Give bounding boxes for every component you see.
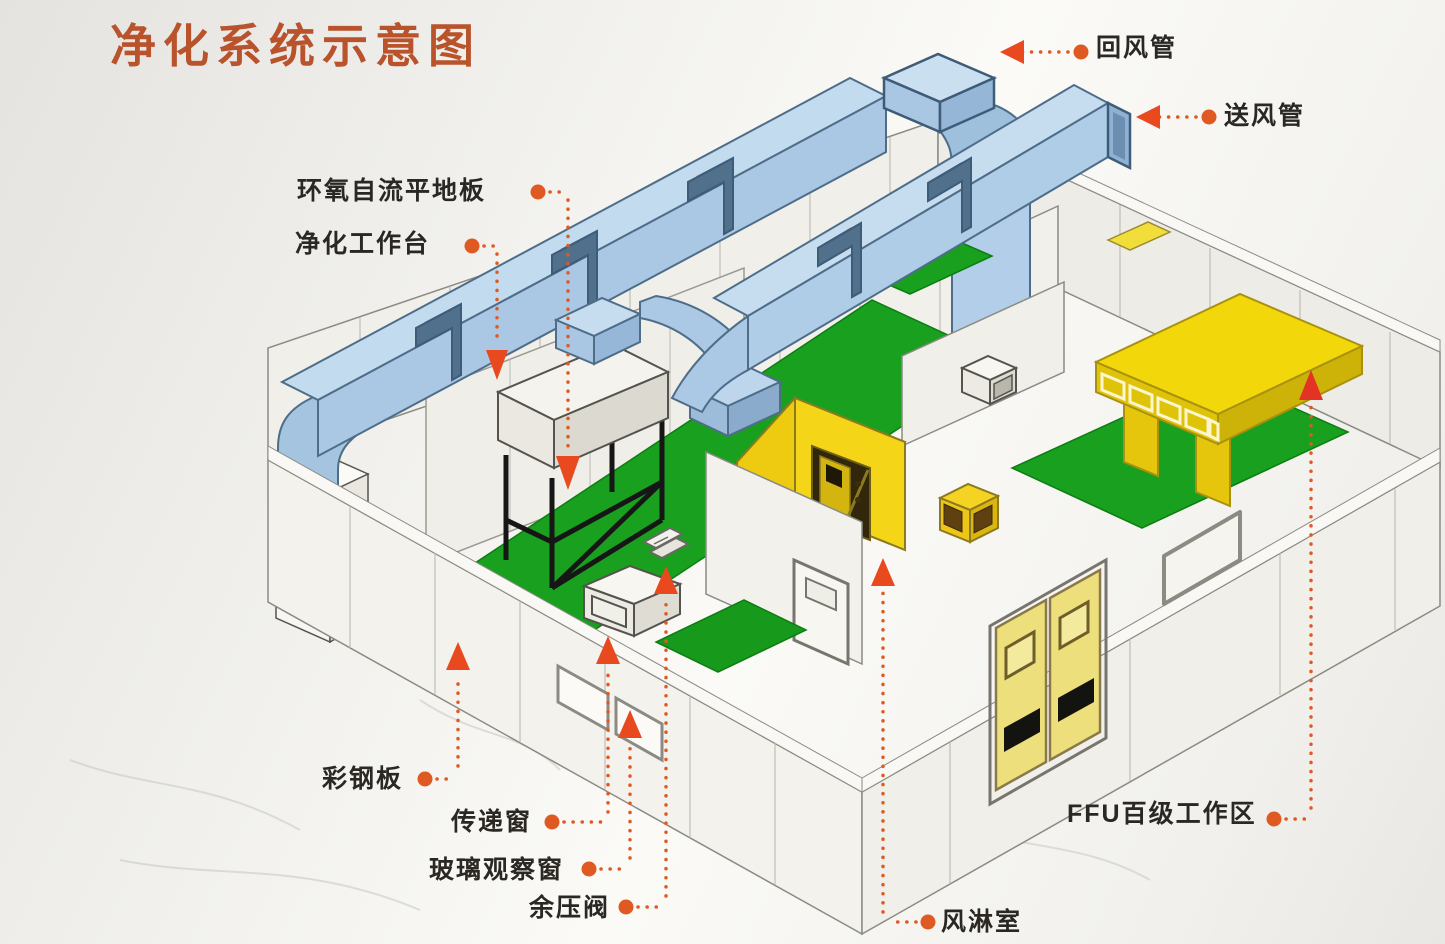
yellow-pass-box xyxy=(940,484,998,542)
label-air-shower: 风淋室 xyxy=(941,907,1022,938)
arrow-air-shower xyxy=(871,558,895,586)
label-ffu-work-area: FFU百级工作区 xyxy=(1067,799,1257,830)
cleanroom-diagram: 净化系统示意图 回风管 送风管 环氧自流平地板 净化工作台 彩钢板 传递窗 玻璃… xyxy=(0,0,1445,944)
label-residual-pressure-valve: 余压阀 xyxy=(529,893,610,924)
label-supply-duct: 送风管 xyxy=(1224,101,1305,132)
page-title: 净化系统示意图 xyxy=(110,22,481,73)
label-color-steel-panel: 彩钢板 xyxy=(322,764,403,795)
label-epoxy-floor: 环氧自流平地板 xyxy=(297,176,486,207)
door-left xyxy=(996,600,1046,790)
door-right xyxy=(1050,570,1100,760)
label-clean-workbench: 净化工作台 xyxy=(295,229,430,260)
label-return-duct: 回风管 xyxy=(1096,33,1177,64)
arrow-return-duct xyxy=(1000,40,1024,64)
arrow-supply-duct xyxy=(1136,105,1160,129)
label-transfer-window: 传递窗 xyxy=(451,807,532,838)
supply-duct-open-end xyxy=(1108,103,1130,168)
label-glass-observation-window: 玻璃观察窗 xyxy=(429,855,564,886)
